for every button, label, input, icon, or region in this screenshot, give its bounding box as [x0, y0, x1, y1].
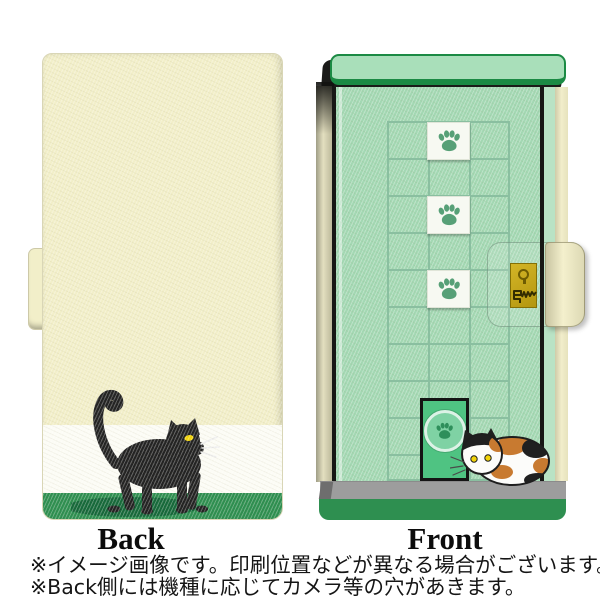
case-back-cover: [42, 53, 283, 520]
lock-plate: [510, 263, 537, 308]
scratch-marks-icon: [512, 287, 537, 305]
paw-print-icon: [435, 276, 463, 302]
disclaimer-notes: ※イメージ画像です。印刷位置などが異なる場合がございます。 ※Back側には機種…: [30, 555, 600, 598]
door-highlight: [339, 87, 342, 481]
strap-belt: [545, 242, 585, 327]
front-green-base: [319, 499, 566, 520]
case-spine-edge: [316, 86, 332, 482]
case-top-bar: [330, 54, 566, 85]
calico-cat-illustration: [450, 420, 555, 486]
keyhole-icon: [518, 269, 529, 280]
note-line-2: ※Back側には機種に応じてカメラ等の穴があきます。: [30, 577, 600, 599]
black-cat-illustration: [71, 384, 221, 518]
floor-edge: [319, 482, 333, 499]
front-label: Front: [385, 521, 505, 557]
paw-print-tile: [427, 122, 470, 160]
back-label: Back: [71, 521, 191, 557]
paw-print-icon: [435, 128, 463, 154]
paw-print-tile: [427, 270, 470, 308]
product-image: Back Front ※イメージ画像です。印刷位置などが異なる場合がございます。…: [0, 0, 600, 600]
paw-print-icon: [435, 202, 463, 228]
note-line-1: ※イメージ画像です。印刷位置などが異なる場合がございます。: [30, 555, 600, 577]
case-front-cover: [316, 54, 568, 521]
paw-print-tile: [427, 196, 470, 234]
